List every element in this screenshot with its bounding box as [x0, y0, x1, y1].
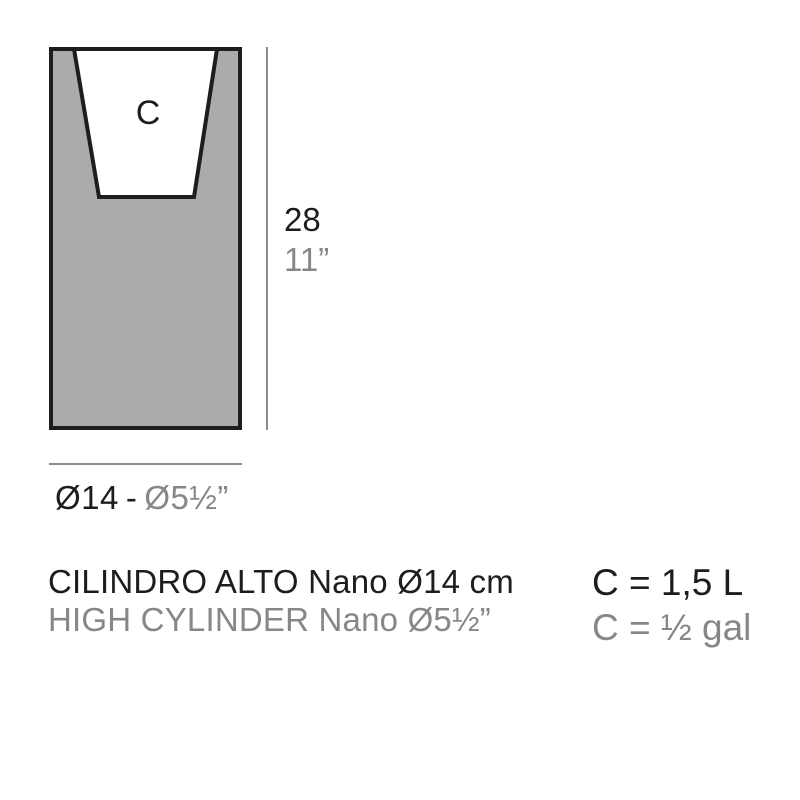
diameter-caption: Ø14-Ø5½”: [55, 481, 229, 514]
cavity-label: C: [128, 96, 168, 130]
diameter-value-inches: Ø5½”: [144, 479, 229, 516]
pot-side-view-diagram: [0, 0, 800, 800]
product-spec-sheet: C 28 11” Ø14-Ø5½” CILINDRO ALTO Nano Ø14…: [0, 0, 800, 800]
product-name-spanish: CILINDRO ALTO Nano Ø14 cm: [48, 565, 514, 598]
diameter-separator: -: [126, 479, 138, 516]
height-value-inches: 11”: [284, 243, 329, 276]
capacity-gallons: C = ½ gal: [592, 609, 751, 646]
product-name-english: HIGH CYLINDER Nano Ø5½”: [48, 603, 491, 636]
diameter-value-cm: Ø14: [55, 479, 119, 516]
capacity-liters: C = 1,5 L: [592, 564, 743, 601]
height-value-cm: 28: [284, 203, 321, 236]
